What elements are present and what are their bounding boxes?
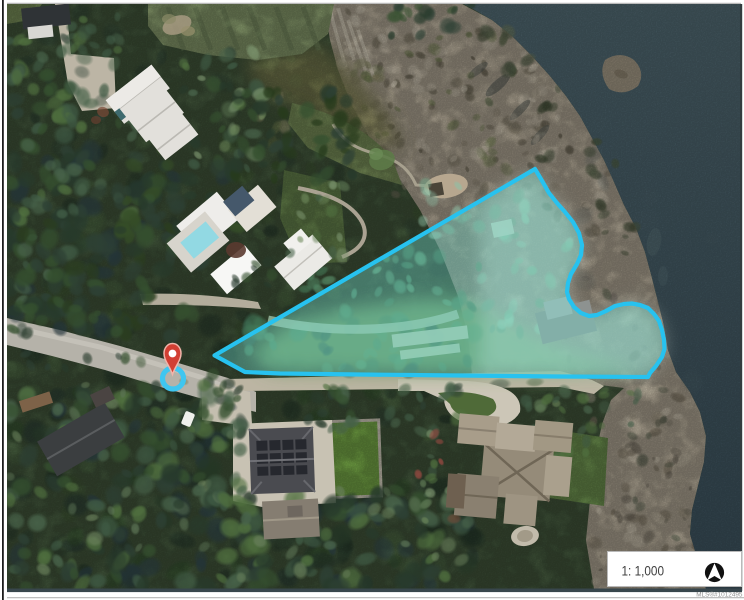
svg-text:1: 1,000: 1: 1,000	[622, 563, 665, 579]
svg-text:MLS®#1012495: MLS®#1012495	[696, 590, 743, 598]
